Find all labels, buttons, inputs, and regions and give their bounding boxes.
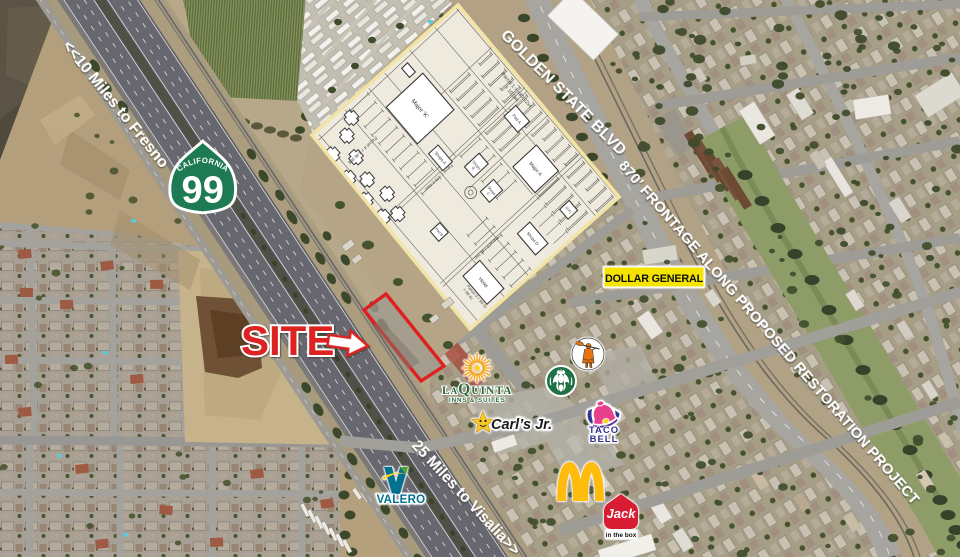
svg-text:Jack: Jack	[607, 506, 637, 521]
svg-text:VALERO: VALERO	[377, 494, 426, 506]
svg-text:SITE: SITE	[241, 317, 334, 364]
svg-text:in the box: in the box	[606, 532, 637, 539]
svg-text:DOLLAR GENERAL: DOLLAR GENERAL	[605, 273, 704, 285]
svg-text:INNS & SUITES: INNS & SUITES	[449, 397, 506, 404]
svg-text:99: 99	[182, 170, 224, 212]
svg-text:Carl’s Jr.: Carl’s Jr.	[491, 417, 552, 433]
svg-text:BELL: BELL	[590, 434, 619, 445]
